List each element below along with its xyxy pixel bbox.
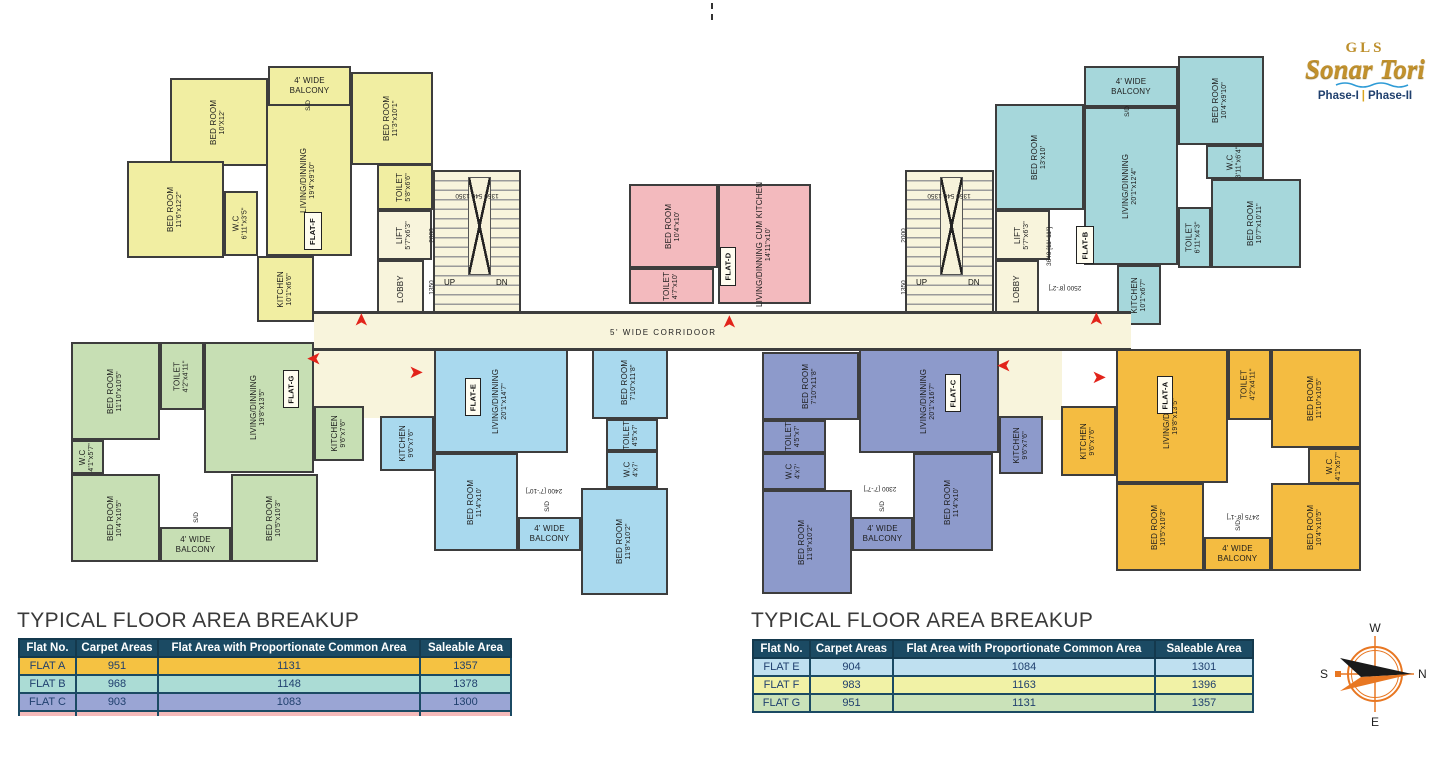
room-label: TOILET4'2"x4'11" bbox=[173, 360, 192, 392]
room-label: LIVING/DINNING CUM KITCHEN14'11"x10' bbox=[755, 181, 774, 306]
flat-b-balcony: 4' WIDE BALCONY bbox=[1084, 66, 1178, 107]
flat-f-bedroom-2: BED ROOM11'3"x10'1" bbox=[351, 72, 433, 165]
sliding-door-tag: S/D bbox=[193, 512, 200, 523]
flat-g-kitchen: KITCHEN9'6"x7'6" bbox=[314, 406, 364, 461]
sliding-door-tag: S/D bbox=[544, 501, 551, 512]
flat-c-kitchen: KITCHEN9'6"x7'6" bbox=[999, 416, 1043, 474]
entry-arrow-icon bbox=[1087, 309, 1107, 329]
flat-g-bedroom-1: BED ROOM11'10"x10'5" bbox=[71, 342, 160, 440]
lift-label: LIFT5'7"x6'3" bbox=[1013, 221, 1032, 250]
phase-label: Phase-I|Phase-II bbox=[1288, 90, 1442, 102]
table-row-flat-g: FLAT G95111311357 bbox=[753, 694, 1253, 712]
room-label: BED ROOM10'7"x10'11" bbox=[1247, 201, 1266, 246]
lift-right: LIFT5'7"x6'3" bbox=[995, 210, 1050, 260]
compass-south-mark bbox=[1335, 671, 1341, 677]
flat-e-balcony: 4' WIDE BALCONY bbox=[518, 517, 581, 551]
flat-b-wc: W.C3'11"x6'4" bbox=[1206, 145, 1264, 179]
stair-dims: 1350 540 1350 bbox=[913, 192, 985, 199]
area-table-left: Flat No. Carpet Areas Flat Area with Pro… bbox=[18, 638, 512, 716]
room-label: 4' WIDE BALCONY bbox=[285, 76, 335, 96]
flat-f-badge: FLAT-F bbox=[304, 212, 322, 250]
compass-s: S bbox=[1320, 667, 1328, 681]
room-label: 4' WIDE BALCONY bbox=[1106, 77, 1156, 97]
room-label: W.C4'1"x5'7" bbox=[1325, 452, 1344, 481]
room-label: BED ROOM11'4"x10' bbox=[944, 479, 963, 524]
flat-e-bedroom-2: BED ROOM11'4"x10' bbox=[434, 453, 518, 551]
room-label: 4' WIDE BALCONY bbox=[1215, 544, 1261, 564]
flat-d-bedroom: BED ROOM10'4"x10' bbox=[629, 184, 718, 268]
room-label: BED ROOM7'10"x11'8" bbox=[801, 363, 820, 408]
room-label: 4' WIDE BALCONY bbox=[860, 524, 906, 544]
lobby-label: LOBBY bbox=[396, 275, 406, 303]
room-label: BED ROOM10'4"x10' bbox=[664, 203, 683, 248]
compass-rose: W N S E bbox=[1316, 620, 1434, 732]
flat-c-bedroom-1: BED ROOM7'10"x11'8" bbox=[762, 352, 859, 420]
room-label: KITCHEN9'6"x7'6" bbox=[398, 425, 417, 462]
lift-label: LIFT5'7"x6'3" bbox=[395, 221, 414, 250]
flat-f-bedroom-3: BED ROOM11'6"x12'2" bbox=[127, 161, 224, 258]
room-label: 4' WIDE BALCONY bbox=[527, 524, 573, 544]
flat-a-badge: FLAT-A bbox=[1157, 376, 1173, 414]
stair-up-label: UP bbox=[444, 278, 455, 287]
room-label: BED ROOM11'10"x10'5" bbox=[106, 368, 125, 413]
room-label: LIVING/DINNING19'4"x9'10" bbox=[300, 147, 319, 212]
entry-arrow-icon bbox=[720, 312, 740, 332]
table-row-flat-f: FLAT F98311631396 bbox=[753, 676, 1253, 694]
table-row-flat-a: FLAT A95111311357 bbox=[19, 657, 511, 675]
dim-annotation: 3640 [11'-11"] bbox=[1046, 227, 1053, 266]
col-common: Flat Area with Proportionate Common Area bbox=[893, 640, 1155, 658]
flat-a-bedroom-3: BED ROOM10'4"x10'5" bbox=[1271, 483, 1361, 571]
col-saleable: Saleable Area bbox=[420, 639, 511, 657]
compass-n: N bbox=[1418, 667, 1427, 681]
room-label: LIVING/DINNING20'1"x14'7" bbox=[492, 368, 511, 433]
flat-a-bedroom-2: BED ROOM10'5"x10'3" bbox=[1116, 483, 1204, 571]
room-label: BED ROOM11'4"x10' bbox=[467, 479, 486, 524]
room-label: BED ROOM10'5"x10'3" bbox=[1151, 504, 1170, 549]
flat-b-toilet: TOILET6'11"x4'3" bbox=[1178, 207, 1211, 268]
flat-f-kitchen: KITCHEN10'1"x6'6" bbox=[257, 256, 314, 322]
table-row-flat-e: FLAT E90410841301 bbox=[753, 658, 1253, 676]
area-table-right: Flat No. Carpet Areas Flat Area with Pro… bbox=[752, 639, 1254, 713]
flat-a-toilet: TOILET4'2"x4'11" bbox=[1228, 349, 1271, 420]
area-breakup-title-left: TYPICAL FLOOR AREA BREAKUP bbox=[17, 609, 359, 633]
flat-g-bedroom-2: BED ROOM10'4"x10'5" bbox=[71, 474, 160, 562]
flat-f-wc: W.C6'11"x3'5" bbox=[224, 191, 258, 256]
table-header-row: Flat No. Carpet Areas Flat Area with Pro… bbox=[753, 640, 1253, 658]
entry-arrow-icon bbox=[304, 348, 324, 368]
compass-e: E bbox=[1371, 715, 1379, 729]
flat-g-toilet: TOILET4'2"x4'11" bbox=[160, 342, 204, 410]
room-label: BED ROOM7'10"x11'8" bbox=[621, 360, 640, 405]
room-label: BED ROOM11'10"x10'5" bbox=[1307, 376, 1326, 421]
room-label: W.C4'x7' bbox=[785, 464, 804, 480]
flat-a-wc: W.C4'1"x5'7" bbox=[1308, 448, 1361, 484]
stair-dim-2000: 2000 bbox=[901, 228, 908, 242]
flat-e-wc: W.C4'x7' bbox=[606, 451, 658, 488]
flat-g-badge: FLAT-G bbox=[283, 370, 299, 408]
room-label: W.C4'x7' bbox=[623, 462, 642, 478]
room-label: TOILET6'11"x4'3" bbox=[1185, 221, 1204, 253]
flat-e-bedroom-3: BED ROOM11'8"x10'2" bbox=[581, 488, 668, 595]
flat-b-badge: FLAT-B bbox=[1076, 226, 1094, 264]
stair-dn-label: DN bbox=[968, 278, 980, 287]
col-carpet: Carpet Areas bbox=[76, 639, 158, 657]
sliding-door-tag: S/D bbox=[879, 501, 886, 512]
room-label: TOILET4'5"x7' bbox=[623, 420, 642, 449]
sliding-door-tag: S/D bbox=[1124, 106, 1131, 117]
flat-c-bedroom-3: BED ROOM11'8"x10'2" bbox=[762, 490, 852, 594]
room-label: KITCHEN10'1"x6'7" bbox=[1130, 277, 1149, 314]
entry-arrow-icon bbox=[994, 355, 1014, 375]
entry-arrow-icon bbox=[1089, 368, 1109, 388]
room-label: W.C3'11"x6'4" bbox=[1226, 146, 1245, 178]
room-label: KITCHEN9'6"x7'6" bbox=[1012, 427, 1031, 464]
room-label: W.C4'1"x5'7" bbox=[78, 443, 97, 472]
flat-b-bedroom-3: BED ROOM10'7"x10'11" bbox=[1211, 179, 1301, 268]
stair-dim-1350: 1350 bbox=[429, 280, 436, 294]
flat-a-living-dining: LIVING/DINNING19'8"x13'5" bbox=[1116, 349, 1228, 483]
brand-sonar-tori: Sonar Tori bbox=[1288, 54, 1442, 85]
lift-left: LIFT5'7"x6'3" bbox=[377, 210, 432, 260]
flat-b-living-dining: LIVING/DINNING20'1"x12'4" bbox=[1084, 107, 1178, 265]
flat-e-badge: FLAT-E bbox=[465, 378, 481, 416]
dim-annotation: 2500 [8'-2"] bbox=[1040, 284, 1090, 291]
entry-arrow-icon bbox=[352, 310, 372, 330]
table-header-row: Flat No. Carpet Areas Flat Area with Pro… bbox=[19, 639, 511, 657]
flat-c-living-dining: LIVING/DINNING20'1"x16'7" bbox=[859, 349, 999, 453]
room-label: BED ROOM10'4"x9'10" bbox=[1212, 78, 1231, 123]
room-label: BED ROOM10'5"x10'3" bbox=[265, 495, 284, 540]
col-carpet: Carpet Areas bbox=[810, 640, 893, 658]
room-label: TOILET4'5"x7' bbox=[785, 422, 804, 451]
flat-b-bedroom-2: BED ROOM10'4"x9'10" bbox=[1178, 56, 1264, 145]
room-label: BED ROOM13'x10' bbox=[1030, 134, 1049, 179]
flat-a-balcony: 4' WIDE BALCONY bbox=[1204, 537, 1271, 571]
floor-plan-sheet: 5' WIDE CORRIDOOR LIFT5'7"x6'3" LOBBY LI… bbox=[0, 0, 1445, 779]
flat-e-toilet: TOILET4'5"x7' bbox=[606, 419, 658, 451]
table-row-flat-c: FLAT C90310831300 bbox=[19, 693, 511, 711]
room-label: LIVING/DINNING19'8"x13'5" bbox=[250, 375, 269, 440]
compass-w: W bbox=[1369, 621, 1381, 635]
stair-dim-1350: 1350 bbox=[901, 280, 908, 294]
stair-dim-2000: 2000 bbox=[429, 228, 436, 242]
room-label: LIVING/DINNING20'1"x16'7" bbox=[920, 368, 939, 433]
corridor-label: 5' WIDE CORRIDOOR bbox=[610, 328, 717, 337]
flat-f-toilet: TOILET5'8"x6'6" bbox=[377, 164, 433, 210]
stair-dims: 1350 540 1350 bbox=[441, 192, 513, 199]
room-label: BED ROOM11'6"x12'2" bbox=[166, 187, 185, 232]
col-flat-no: Flat No. bbox=[753, 640, 810, 658]
room-label: BED ROOM11'8"x10'2" bbox=[615, 519, 634, 564]
room-label: KITCHEN9'6"x7'6" bbox=[1079, 423, 1098, 460]
flat-d-living-dining-kitchen: LIVING/DINNING CUM KITCHEN14'11"x10' bbox=[718, 184, 811, 304]
sliding-door-tag: S/D bbox=[1235, 520, 1242, 531]
room-label: TOILET4'7"x10' bbox=[662, 271, 681, 300]
stair-dn-label: DN bbox=[496, 278, 508, 287]
centerline-tick bbox=[711, 3, 713, 20]
room-label: 4' WIDE BALCONY bbox=[173, 535, 219, 555]
flat-f-bedroom-1: BED ROOM10'X12' bbox=[170, 78, 268, 166]
flat-a-kitchen: KITCHEN9'6"x7'6" bbox=[1061, 406, 1116, 476]
lobby-left: LOBBY bbox=[377, 260, 424, 318]
col-common: Flat Area with Proportionate Common Area bbox=[158, 639, 420, 657]
flat-c-badge: FLAT-C bbox=[945, 374, 961, 412]
dim-annotation: 2400 [7'-10"] bbox=[517, 487, 571, 494]
flat-e-kitchen: KITCHEN9'6"x7'6" bbox=[380, 416, 434, 471]
room-label: BED ROOM10'4"x10'5" bbox=[1307, 504, 1326, 549]
lobby-label: LOBBY bbox=[1012, 275, 1022, 303]
room-label: KITCHEN10'1"x6'6" bbox=[276, 271, 295, 308]
area-breakup-title-right: TYPICAL FLOOR AREA BREAKUP bbox=[751, 609, 1093, 633]
flat-g-bedroom-3: BED ROOM10'5"x10'3" bbox=[231, 474, 318, 562]
flat-a-bedroom-1: BED ROOM11'10"x10'5" bbox=[1271, 349, 1361, 448]
room-label: KITCHEN9'6"x7'6" bbox=[330, 415, 349, 452]
flat-b-bedroom-1: BED ROOM13'x10' bbox=[995, 104, 1084, 210]
table-row-flat-b: FLAT B96811481378 bbox=[19, 675, 511, 693]
room-label: BED ROOM10'X12' bbox=[210, 99, 229, 144]
room-label: BED ROOM11'8"x10'2" bbox=[798, 519, 817, 564]
col-saleable: Saleable Area bbox=[1155, 640, 1253, 658]
col-flat-no: Flat No. bbox=[19, 639, 76, 657]
table-row-flat-d-partial bbox=[19, 711, 511, 716]
brand-logo: GLS Sonar Tori Phase-I|Phase-II bbox=[1288, 40, 1442, 102]
room-label: BED ROOM10'4"x10'5" bbox=[106, 495, 125, 540]
flat-c-toilet: TOILET4'5"x7' bbox=[762, 420, 826, 453]
lobby-right: LOBBY bbox=[995, 260, 1039, 318]
flat-e-living-dining: LIVING/DINNING20'1"x14'7" bbox=[434, 349, 568, 453]
room-label: TOILET4'2"x4'11" bbox=[1240, 368, 1259, 400]
flat-d-badge: FLAT-D bbox=[720, 247, 736, 286]
flat-e-bedroom-1: BED ROOM7'10"x11'8" bbox=[592, 346, 668, 419]
flat-c-bedroom-2: BED ROOM11'4"x10' bbox=[913, 453, 993, 551]
flat-c-wc: W.C4'x7' bbox=[762, 453, 826, 490]
room-label: W.C6'11"x3'5" bbox=[232, 207, 251, 239]
flat-c-balcony: 4' WIDE BALCONY bbox=[852, 517, 913, 551]
stair-up-label: UP bbox=[916, 278, 927, 287]
room-label: LIVING/DINNING20'1"x12'4" bbox=[1122, 153, 1141, 218]
entry-arrow-icon bbox=[406, 363, 426, 383]
room-label: TOILET5'8"x6'6" bbox=[396, 172, 415, 201]
room-label: BED ROOM11'3"x10'1" bbox=[383, 96, 402, 141]
sliding-door-tag: S/D bbox=[305, 100, 312, 111]
flat-g-wc: W.C4'1"x5'7" bbox=[71, 440, 104, 474]
dim-annotation: 2475 [8'-1"] bbox=[1215, 513, 1271, 520]
flat-d-toilet: TOILET4'7"x10' bbox=[629, 268, 714, 304]
dim-annotation: 2300 [7'-7"] bbox=[853, 485, 907, 492]
flat-g-balcony: 4' WIDE BALCONY bbox=[160, 527, 231, 562]
